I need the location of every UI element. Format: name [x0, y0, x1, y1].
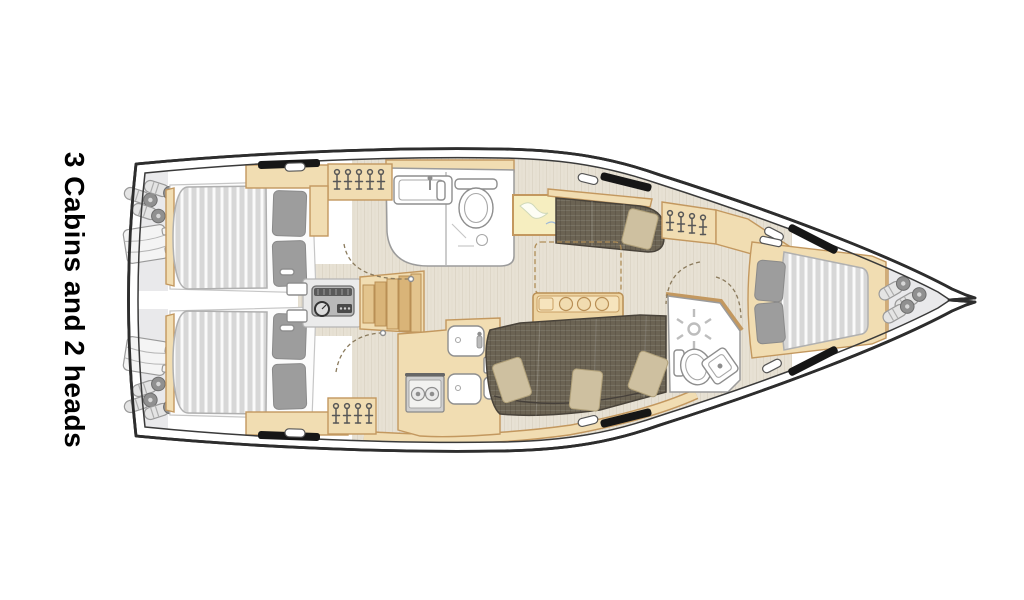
head-aft	[386, 168, 514, 266]
door-latch	[280, 325, 294, 331]
stair-step	[363, 285, 374, 323]
cabinet	[310, 186, 328, 236]
deck-cleat	[285, 163, 305, 172]
pillow	[754, 260, 785, 302]
cabin-door-leaf	[287, 283, 307, 295]
throw-pillow	[569, 369, 603, 412]
yacht-floorplan-page: 3 Cabins and 2 heads	[0, 0, 1024, 600]
shelf	[437, 181, 445, 200]
stair-step	[387, 279, 398, 329]
v-berth-bed	[781, 252, 868, 350]
engine-vent	[314, 288, 352, 296]
galley-sink	[448, 374, 481, 404]
deck-cleat	[285, 429, 305, 438]
cabin-door-leaf	[287, 310, 307, 322]
door-latch	[280, 269, 294, 275]
double-bed	[173, 311, 267, 414]
pillow	[272, 240, 307, 286]
stair-step	[375, 282, 386, 326]
pillow	[272, 190, 307, 236]
pillow	[272, 363, 307, 409]
pillow	[754, 302, 785, 344]
double-bed	[173, 186, 267, 289]
faucet-icon	[477, 336, 482, 348]
cup-holder-icon	[560, 298, 573, 311]
cup-holder-icon	[578, 298, 591, 311]
cup-holder-icon	[596, 298, 609, 311]
floor-plan-drawing	[0, 0, 1024, 600]
stair-step	[411, 274, 421, 332]
hanging-locker-galley	[328, 398, 376, 434]
stair-step	[399, 276, 410, 331]
galley	[398, 318, 500, 437]
